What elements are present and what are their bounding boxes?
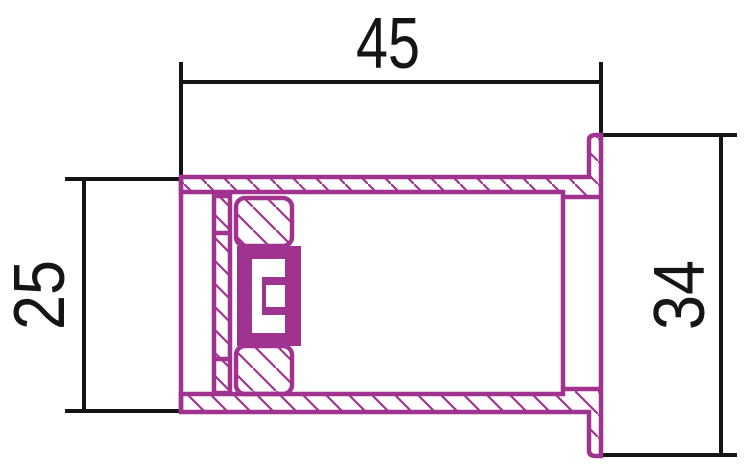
grooved-insert: [237, 246, 301, 346]
part-top-wall-and-flange: [181, 135, 601, 197]
washer-plate: [214, 196, 230, 393]
drawing-canvas: 45 25 34: [0, 0, 750, 470]
dim-label-25: 25: [0, 260, 80, 330]
dim-label-45: 45: [356, 4, 420, 84]
dimension-labels: 45 25 34: [0, 4, 720, 330]
part-section: [181, 135, 601, 456]
seal-lower: [236, 346, 292, 394]
part-bottom-wall-and-flange: [181, 389, 601, 456]
seal-upper: [236, 198, 292, 246]
dim-label-34: 34: [640, 260, 720, 330]
technical-drawing: 45 25 34: [0, 0, 750, 470]
